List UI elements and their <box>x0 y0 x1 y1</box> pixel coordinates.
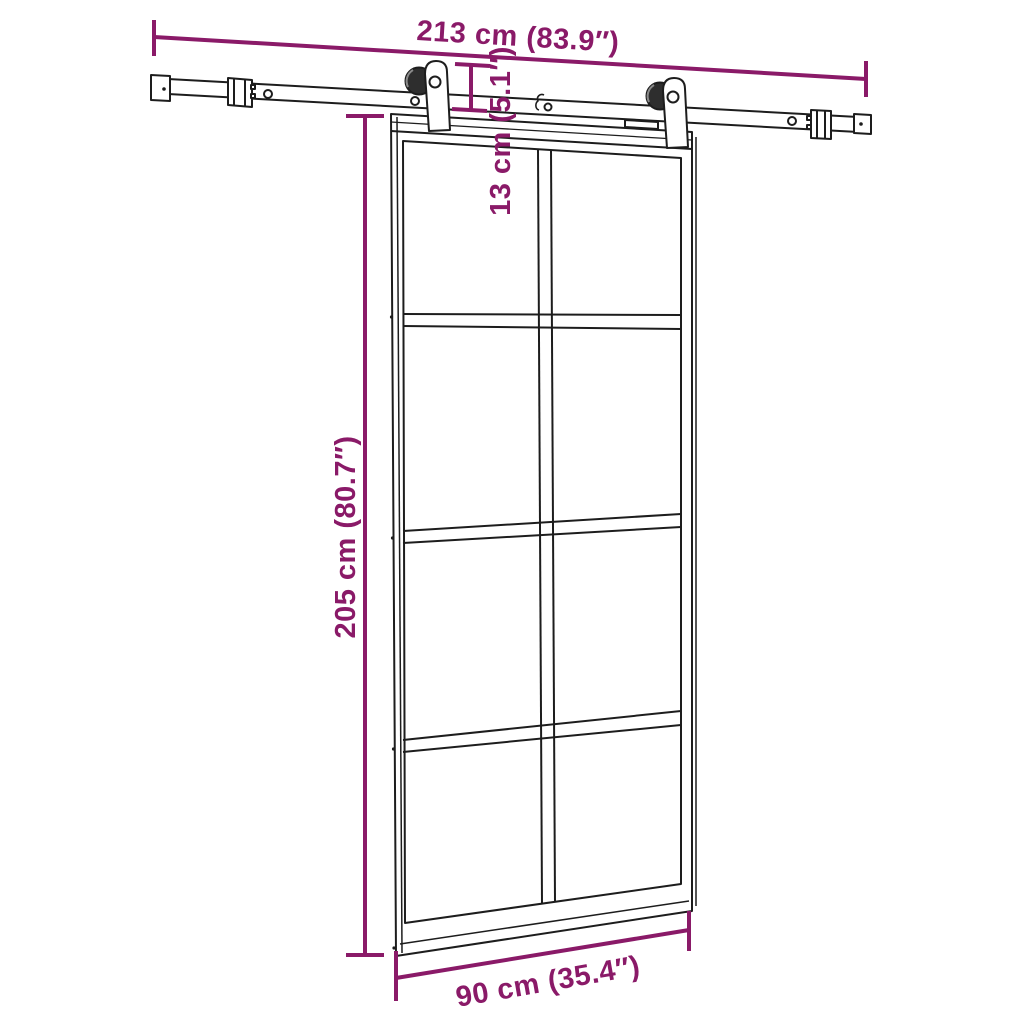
glass-door <box>390 114 696 956</box>
frame-rivet <box>390 315 393 318</box>
anti-jump-block <box>625 120 658 129</box>
rail-collar-left <box>228 78 255 107</box>
rail-end-cap-left <box>151 75 170 101</box>
diagram-canvas: 213 cm (83.9″) 13 cm (5.1″) 205 cm (80.7… <box>0 0 1024 1024</box>
door-height-label: 205 cm (80.7″) <box>330 435 362 638</box>
hanger-bolt-right <box>668 92 679 103</box>
frame-rivet <box>392 946 395 949</box>
frame-rivet <box>392 747 395 750</box>
product-diagram: 213 cm (83.9″) 13 cm (5.1″) 205 cm (80.7… <box>0 0 1024 1024</box>
hanger-strap-right <box>663 78 688 148</box>
rail-hole <box>264 90 272 98</box>
rail-end-screw-right <box>859 122 863 126</box>
hanger-strap-left <box>425 61 450 131</box>
rail-hole <box>411 97 419 105</box>
door-width-label: 90 cm (35.4″) <box>453 950 642 1014</box>
rail-end-screw-left <box>162 87 166 91</box>
rail-collar-right <box>807 110 831 139</box>
rail-hole <box>545 104 552 111</box>
rail-hole <box>788 117 796 125</box>
hanger-drop-label: 13 cm (5.1″) <box>485 46 517 216</box>
frame-rivet <box>391 536 394 539</box>
hanger-bolt-left <box>430 77 441 88</box>
